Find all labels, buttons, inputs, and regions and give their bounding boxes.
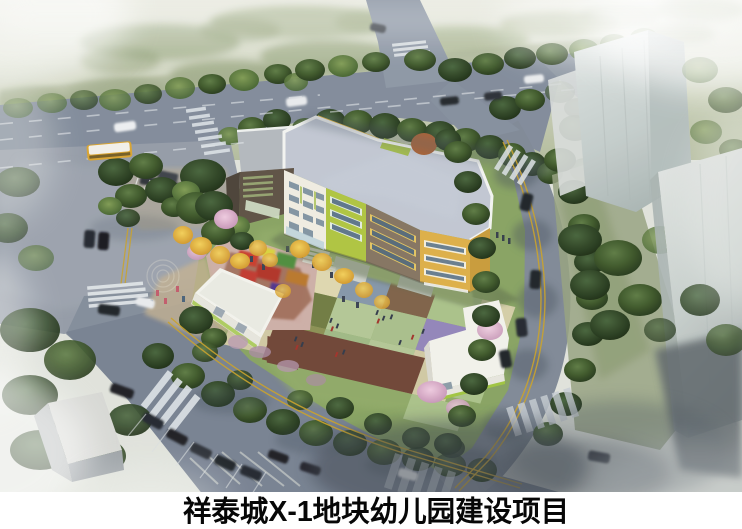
svg-text:祥泰城X-1地块幼儿园建设项目: 祥泰城X-1地块幼儿园建设项目 — [183, 496, 569, 528]
